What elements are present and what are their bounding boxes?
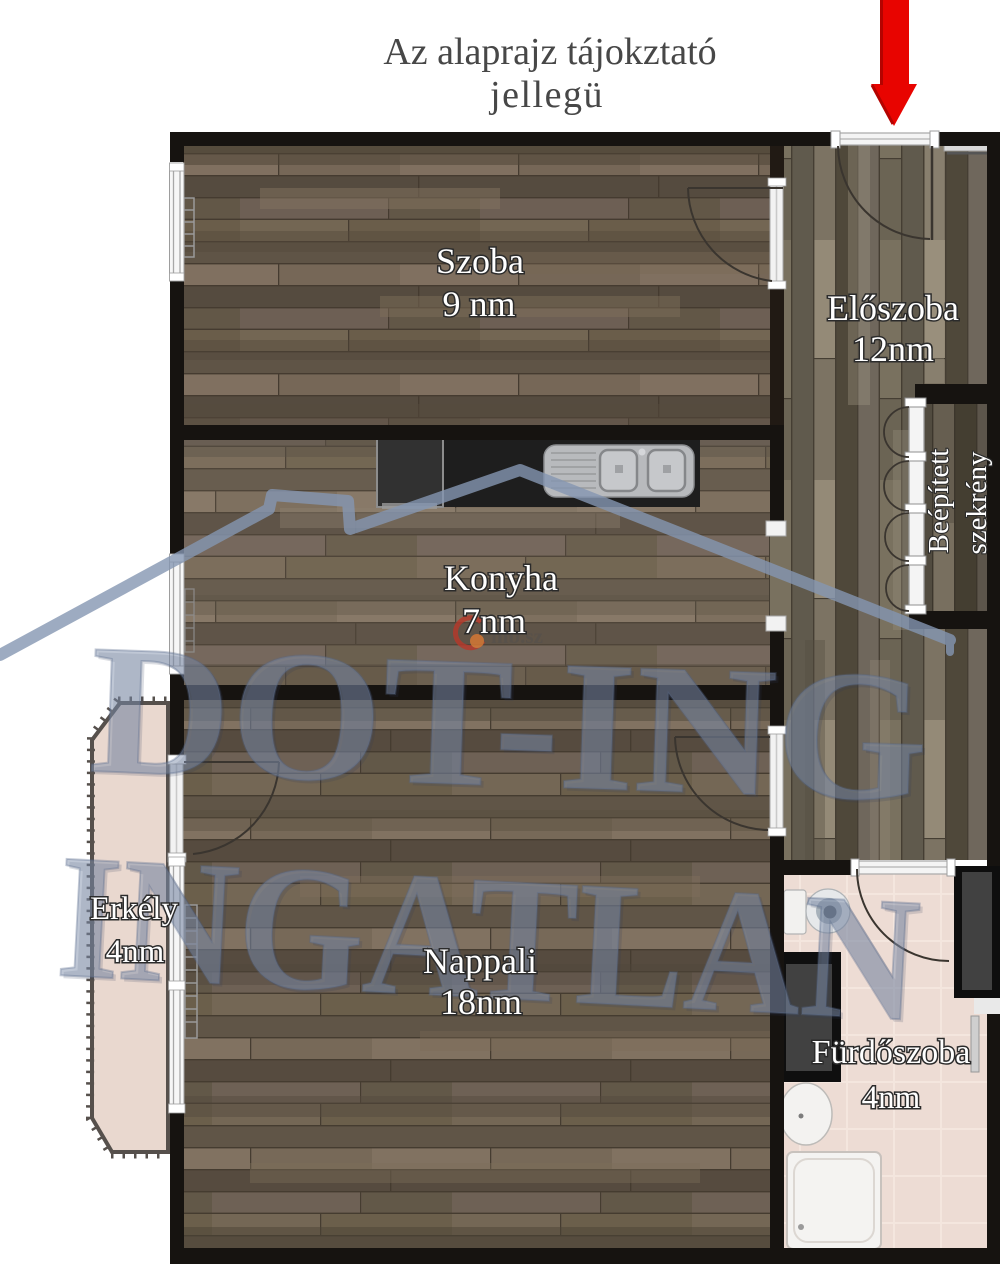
svg-text:4nm: 4nm <box>106 934 165 970</box>
svg-text:12nm: 12nm <box>852 329 934 369</box>
svg-text:Előszoba: Előszoba <box>827 288 959 328</box>
svg-text:Erkély: Erkély <box>90 891 178 927</box>
svg-text:szekrény: szekrény <box>961 451 993 555</box>
svg-text:9 nm: 9 nm <box>442 284 515 324</box>
svg-text:Nappali: Nappali <box>423 941 537 981</box>
svg-text:jellegü: jellegü <box>488 74 604 116</box>
svg-text:Fürdőszoba: Fürdőszoba <box>812 1034 971 1071</box>
svg-text:18nm: 18nm <box>440 982 522 1022</box>
svg-text:Szoba: Szoba <box>436 241 524 281</box>
svg-text:Beépített: Beépített <box>923 449 955 554</box>
svg-text:4nm: 4nm <box>862 1080 921 1116</box>
svg-text:Konyha: Konyha <box>444 558 558 598</box>
svg-text:Az alaprajz tájokztató: Az alaprajz tájokztató <box>383 31 716 73</box>
svg-text:7nm: 7nm <box>462 601 526 641</box>
